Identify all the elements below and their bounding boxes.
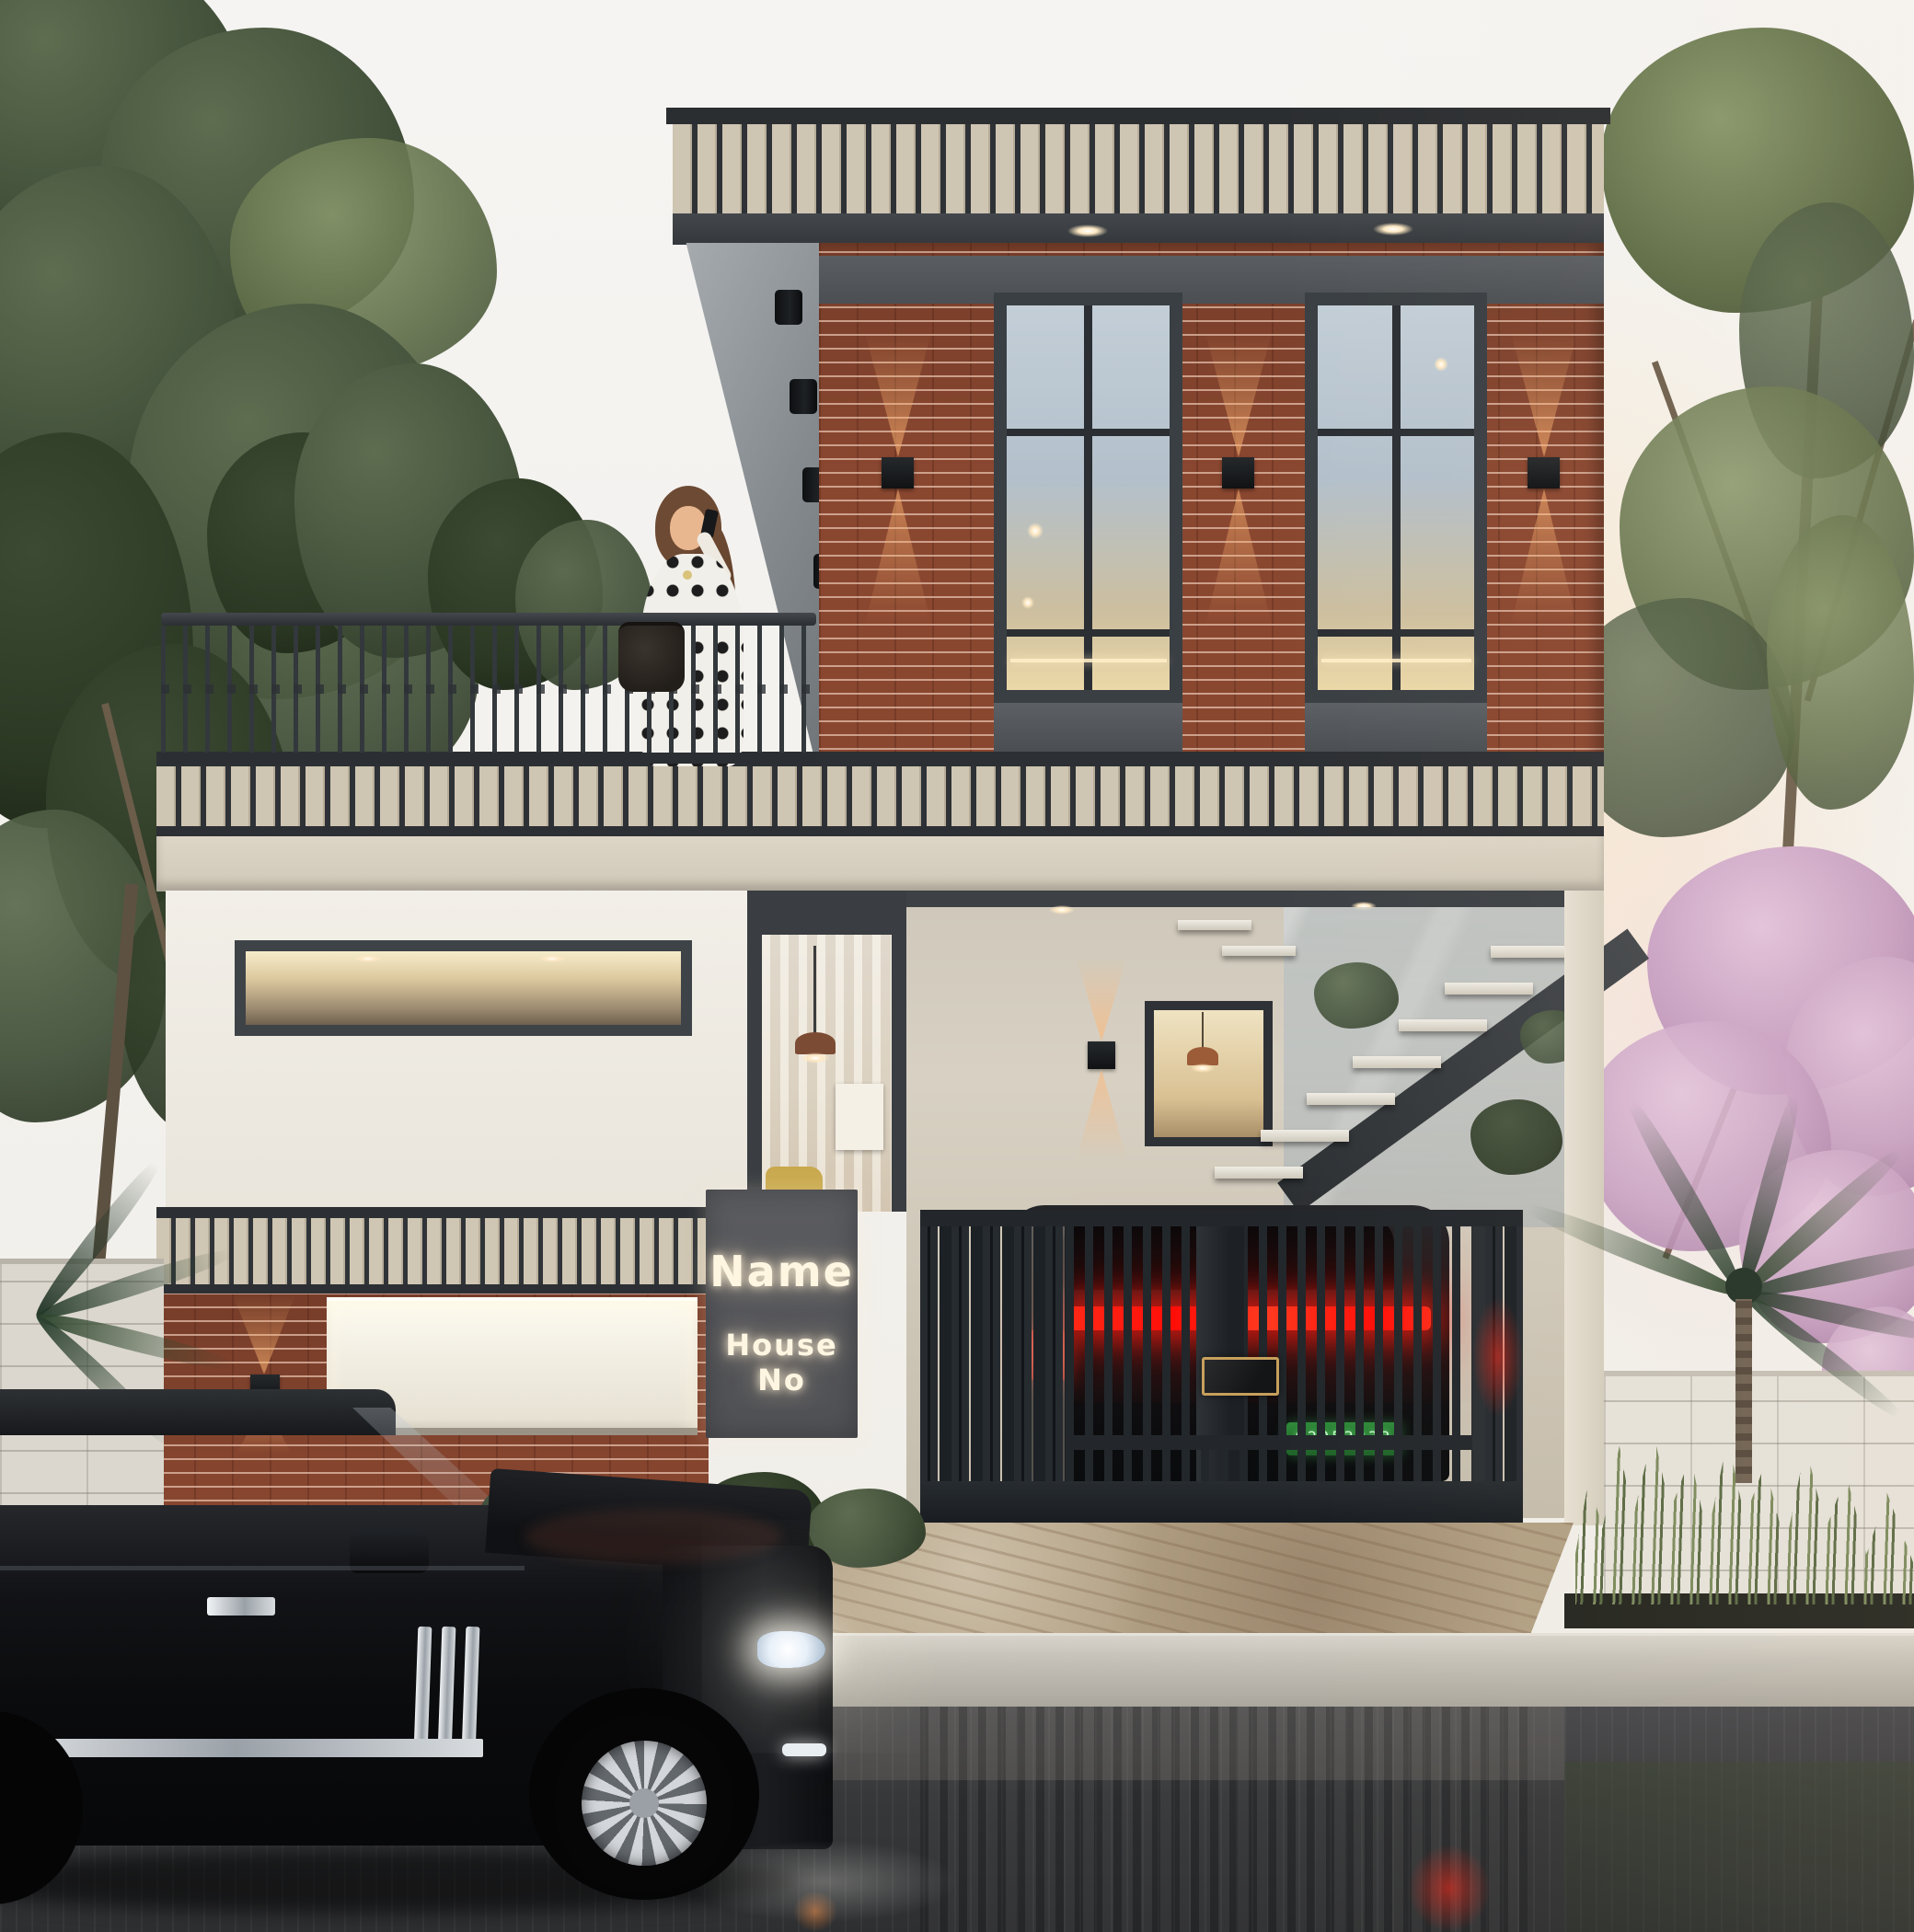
recessed-downlight <box>1067 224 1108 237</box>
strip-window-glass <box>246 951 681 1025</box>
necklace <box>683 570 692 580</box>
stair-tread <box>1307 1093 1395 1105</box>
interior-ceiling-light <box>538 955 566 962</box>
window-mullion-h <box>1318 629 1474 637</box>
balcony-railing <box>161 613 816 764</box>
gate-bars <box>1066 1226 1472 1444</box>
suv-headlight <box>757 1631 825 1668</box>
interior-ceiling-light <box>354 955 382 962</box>
suv-hub <box>629 1788 659 1818</box>
porch-downlight <box>1049 905 1075 914</box>
wall-sconce <box>1222 457 1254 489</box>
suv-door-handle <box>207 1597 275 1616</box>
right-palm <box>1528 1058 1914 1490</box>
band-bottom-rail <box>156 826 1604 836</box>
tail-light-reflection <box>1472 1297 1523 1417</box>
suv-brick-reflection <box>525 1509 782 1564</box>
stair-tread <box>1399 1019 1487 1031</box>
stair-tread <box>1261 1130 1349 1142</box>
porch-ceiling-edge <box>906 891 1564 907</box>
gate-ornate-panel-left <box>920 1226 1066 1495</box>
baluster-finials <box>161 684 816 694</box>
porch-interior-window <box>1145 1001 1273 1146</box>
stair-tread <box>1445 983 1533 995</box>
pendant-shade <box>795 1032 836 1054</box>
recessed-downlight <box>1373 223 1413 236</box>
suv-front-wheel <box>554 1713 734 1893</box>
stair-plant <box>1314 962 1399 1029</box>
window-mullion-h <box>1318 429 1474 436</box>
upper-floor-fascia <box>666 108 1610 124</box>
pendant-stem <box>813 946 816 1034</box>
suv-drl-lower <box>782 1743 826 1756</box>
parapet-slat-band <box>673 124 1604 216</box>
window-spandrel <box>1305 703 1487 753</box>
red-light-reflection <box>1408 1845 1491 1932</box>
pendant-glow <box>1191 1064 1215 1073</box>
gate-mid-rail <box>1066 1435 1472 1450</box>
wall-sconce <box>1528 457 1560 489</box>
glass-glint <box>1021 596 1034 609</box>
upper-trim-band <box>673 213 1604 245</box>
gate-top-rail <box>920 1210 1523 1226</box>
pendant-glow <box>801 1052 830 1064</box>
suv-beltline-sheen <box>0 1566 525 1570</box>
glass-entry-bay <box>747 891 906 1212</box>
upper-window <box>1305 293 1487 703</box>
bottom-rail <box>161 753 816 764</box>
upper-flight-tread <box>1222 946 1296 956</box>
upper-window <box>994 293 1182 703</box>
interior-light-line <box>1010 659 1167 662</box>
upper-flight-tread <box>1178 920 1251 930</box>
palm-trunk <box>1735 1299 1752 1483</box>
glass-glint <box>1434 357 1448 372</box>
sign-name-text: Name <box>706 1247 858 1296</box>
mid-slat-band <box>156 766 1604 826</box>
window-mullion-h <box>1007 629 1170 637</box>
window-spandrel <box>994 703 1182 753</box>
cylinder-downlight <box>775 290 802 325</box>
handrail <box>161 613 816 626</box>
handbag <box>618 622 685 692</box>
framed-art <box>836 1084 883 1150</box>
wall-sconce <box>882 457 914 489</box>
pendant-stem <box>1202 1012 1204 1049</box>
black-suv <box>0 1325 865 1932</box>
plinth-reflection <box>810 1707 1564 1780</box>
window-mullion-h <box>1007 429 1170 436</box>
grass-reflection <box>1564 1762 1914 1932</box>
glass-glint <box>1027 523 1043 539</box>
suv-sill-trim <box>0 1739 483 1757</box>
gate-bottom-band <box>920 1481 1523 1523</box>
stair-tread <box>1353 1056 1441 1068</box>
strip-window <box>235 940 692 1036</box>
stair-tread <box>1215 1167 1303 1179</box>
gate-gold-plaque <box>1202 1357 1279 1396</box>
interior-room-glow <box>1154 1010 1263 1137</box>
scene: 62053333 Name House No <box>0 0 1914 1932</box>
porch-wall-sconce <box>1088 1041 1115 1069</box>
copper-pendant <box>1187 1047 1218 1065</box>
interior-light-line <box>1321 659 1471 662</box>
floor-beam <box>156 836 1604 891</box>
cylinder-downlight <box>790 379 817 414</box>
